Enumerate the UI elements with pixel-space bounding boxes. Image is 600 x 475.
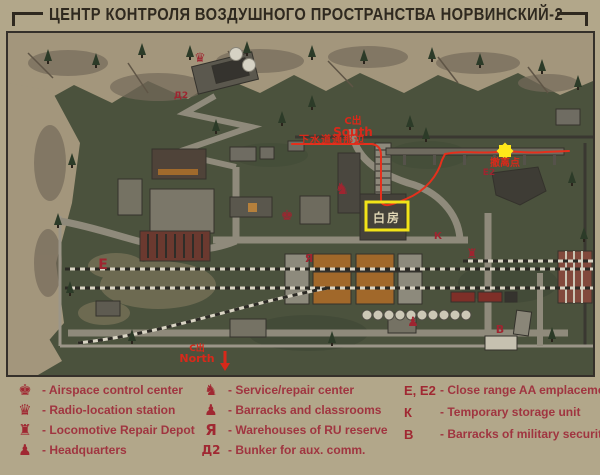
legend-label: - Airspace control center: [42, 383, 183, 397]
aa-emplacement-e-marker: E: [98, 257, 108, 273]
map-legend: ♚- Airspace control center ♛- Radio-loca…: [0, 375, 600, 475]
warehouse-block: [356, 254, 394, 304]
barracks-icon: ♟: [407, 315, 419, 330]
map-screenshot: ЦЕНТР КОНТРОЛЯ ВОЗДУШНОГО ПРОСТРАНСТВА Н…: [0, 0, 600, 475]
page-title: ЦЕНТР КОНТРОЛЯ ВОЗДУШНОГО ПРОСТРАНСТВА Н…: [0, 4, 600, 30]
barracks-classrooms-icon: ♟: [200, 403, 222, 417]
security-barracks-b-marker: B: [496, 323, 504, 336]
legend-label: - Barracks and classrooms: [228, 403, 381, 417]
legend-label: - Bunker for aux. comm.: [228, 443, 365, 457]
legend-label: - Warehouses of RU reserve: [228, 423, 388, 437]
legend-item: B- Barracks of military security team: [404, 424, 600, 444]
legend-label: - Headquarters: [42, 443, 127, 457]
locomotive-depot-icon: ♜: [14, 423, 36, 437]
legend-label: - Barracks of military security team: [440, 427, 600, 441]
building: [556, 109, 580, 125]
base-map-canvas: 白房 C出 South 下水道通那边 C出 North 撤离点 ♛ Д2 ♞ ♚…: [8, 33, 593, 375]
storage-k-marker: К: [434, 231, 443, 242]
locomotive: [505, 292, 517, 302]
service-repair-center-icon: ♞: [200, 383, 222, 397]
radar-dome-icon: [243, 59, 256, 72]
legend-item: ♞- Service/repair center: [200, 380, 354, 400]
building: [118, 179, 142, 215]
service-repair-center-icon: ♞: [335, 179, 349, 198]
radio-location-station-icon: ♛: [14, 403, 36, 417]
airspace-control-center-icon: ♚: [14, 383, 36, 397]
north-exit-label-line2: North: [179, 352, 214, 365]
airspace-control-center-icon: ♚: [281, 208, 294, 224]
legend-label: - Close range AA emplacement: [440, 383, 600, 397]
legend-item: ♟- Barracks and classrooms: [200, 400, 381, 420]
security-barracks-letter: B: [404, 427, 438, 442]
building: [300, 196, 330, 224]
legend-item: ♜- Locomotive Repair Depot: [14, 420, 195, 440]
building-door: [248, 203, 257, 212]
radio-location-station-icon: ♛: [194, 51, 206, 66]
headquarters-icon: ♟: [14, 443, 36, 457]
warehouses-ru-icon: Я: [305, 252, 313, 265]
building: [150, 189, 214, 233]
radar-dome-icon: [230, 48, 243, 61]
legend-item: К- Temporary storage unit: [404, 402, 580, 422]
legend-item: Я- Warehouses of RU reserve: [200, 420, 388, 440]
building: [485, 336, 517, 350]
base-map: 白房 C出 South 下水道通那边 C出 North 撤离点 ♛ Д2 ♞ ♚…: [6, 31, 595, 377]
building: [513, 310, 531, 336]
train-car: [451, 292, 475, 302]
warehouses-ru-icon: Я: [200, 423, 222, 437]
south-exit-note: 下水道通那边: [299, 133, 365, 146]
title-bracket-left: [12, 12, 43, 26]
aa-emplacement-e2-marker: E2: [483, 168, 495, 178]
legend-label: - Service/repair center: [228, 383, 354, 397]
legend-label: - Radio-location station: [42, 403, 175, 417]
aa-emplacement-letters: E, E2: [404, 383, 438, 398]
legend-item: ♚- Airspace control center: [14, 380, 183, 400]
extraction-star-icon: [497, 143, 514, 160]
legend-item: ♟- Headquarters: [14, 440, 127, 460]
building-roof-detail: [158, 169, 198, 175]
page-title-text: ЦЕНТР КОНТРОЛЯ ВОЗДУШНОГО ПРОСТРАНСТВА Н…: [49, 4, 563, 25]
warehouse-block: [313, 254, 351, 304]
legend-item: Д2- Bunker for aux. comm.: [200, 440, 365, 460]
legend-item: E, E2- Close range AA emplacement: [404, 380, 600, 400]
building: [230, 147, 256, 161]
legend-label: - Locomotive Repair Depot: [42, 423, 195, 437]
legend-item: ♛- Radio-location station: [14, 400, 175, 420]
depot-roof-detail: [148, 234, 202, 258]
title-bracket-right: [557, 12, 588, 26]
building: [260, 147, 274, 159]
building: [96, 301, 120, 316]
white-house-label: 白房: [373, 210, 401, 225]
bunker-d2-marker: Д2: [174, 91, 188, 101]
legend-label: - Temporary storage unit: [440, 405, 580, 419]
storage-unit-letter: К: [404, 405, 438, 420]
bunker-aux-comm-icon: Д2: [200, 443, 222, 457]
train-car: [478, 292, 502, 302]
warehouse-block: [398, 254, 422, 304]
building: [230, 319, 266, 337]
locomotive-depot-icon: ♜: [466, 247, 478, 262]
